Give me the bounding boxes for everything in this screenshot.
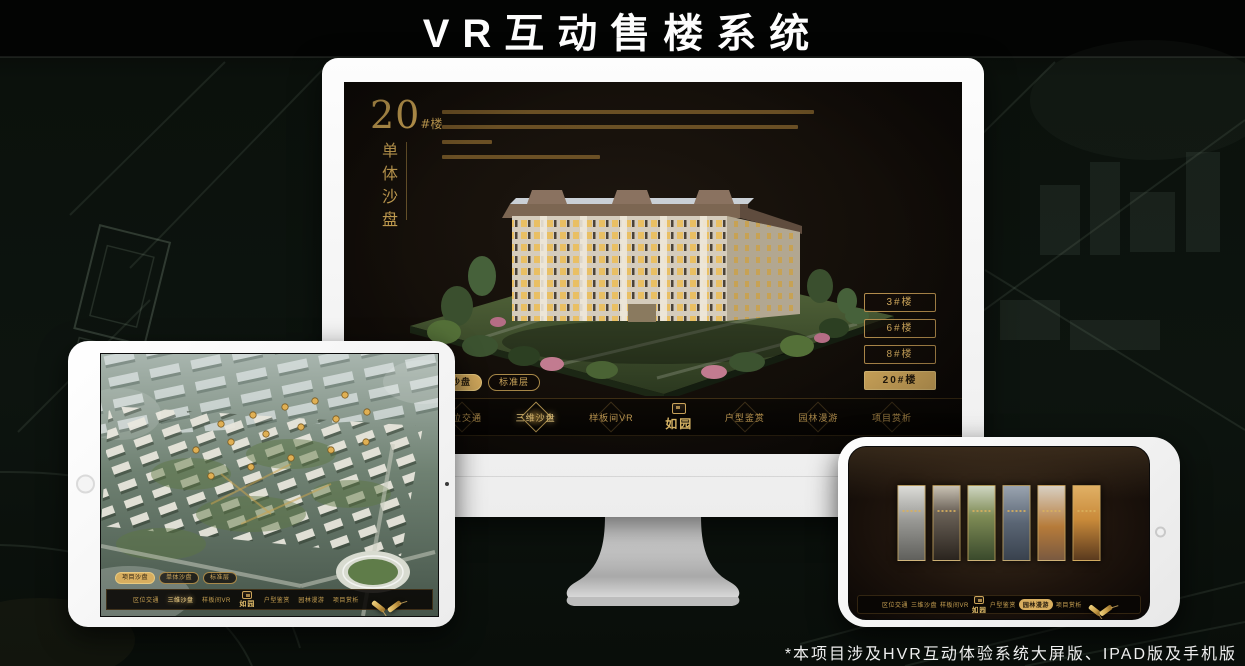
nav-item-showroom-vr[interactable]: 样板间VR — [587, 407, 636, 428]
nav-item-project-gallery[interactable]: 项目赏析 — [870, 407, 914, 428]
building-block — [502, 190, 802, 322]
floor-button-8[interactable]: 8#楼 — [864, 345, 936, 364]
poster-stage: VR互动售楼系统 20#楼 单体沙盘 — [0, 0, 1245, 666]
stadium — [336, 551, 410, 593]
phone-nav-3d-sandbox[interactable]: 三维沙盘 — [911, 600, 937, 609]
scroll-menu-icon-right[interactable] — [1099, 604, 1113, 616]
phone-screen: 区位交通 三维沙盘 样板间VR 如园 户型鉴赏 园林漫游 项目赏析 — [848, 446, 1150, 620]
panorama-card-garden[interactable] — [968, 485, 996, 561]
tablet-screen: 项目沙盘 单体沙盘 标准层 区位交通 三维沙盘 样板间VR 如园 户型鉴赏 园林… — [100, 353, 439, 617]
phone-nav-location[interactable]: 区位交通 — [882, 600, 908, 609]
seal-icon — [242, 591, 252, 599]
tablet-nav-showroom-vr[interactable]: 样板间VR — [202, 595, 231, 604]
footnote-text: *本项目涉及HVR互动体验系统大屏版、IPAD版及手机版 — [785, 640, 1237, 664]
subtab-standard-floor[interactable]: 标准层 — [488, 374, 540, 391]
tablet-device: 项目沙盘 单体沙盘 标准层 区位交通 三维沙盘 样板间VR 如园 户型鉴赏 园林… — [68, 341, 455, 627]
phone-nav-showroom-vr[interactable]: 样板间VR — [940, 600, 969, 609]
phone-nav-project-gallery[interactable]: 项目赏析 — [1056, 600, 1082, 609]
phone-brand-logo-text: 如园 — [972, 604, 987, 614]
phone-nav-floorplans[interactable]: 户型鉴赏 — [990, 600, 1016, 609]
panorama-gallery — [898, 485, 1101, 561]
tablet-brand-logo[interactable]: 如园 — [239, 591, 255, 609]
monitor-stand — [543, 515, 763, 611]
brand-logo-text: 如园 — [665, 415, 693, 432]
tablet-subtab-project-sandbox[interactable]: 项目沙盘 — [115, 572, 155, 584]
phone-nav-garden-roam[interactable]: 园林漫游 — [1019, 599, 1053, 610]
panorama-card-cabinet[interactable] — [1073, 485, 1101, 561]
panorama-card-autumn-court[interactable] — [1038, 485, 1066, 561]
tablet-navbar: 区位交通 三维沙盘 样板间VR 如园 户型鉴赏 园林漫游 项目赏析 — [106, 589, 433, 610]
phone-navbar: 区位交通 三维沙盘 样板间VR 如园 户型鉴赏 园林漫游 项目赏析 — [857, 595, 1141, 614]
tablet-nav-garden-roam[interactable]: 园林漫游 — [298, 595, 324, 604]
tablet-subtab-single-sandbox[interactable]: 单体沙盘 — [159, 572, 199, 584]
seal-icon — [672, 403, 686, 414]
nav-item-floorplans[interactable]: 户型鉴赏 — [723, 407, 767, 428]
panorama-card-building[interactable] — [1003, 485, 1031, 561]
phone-camera-icon — [1155, 527, 1166, 538]
tablet-nav-3d-sandbox[interactable]: 三维沙盘 — [168, 595, 194, 604]
phone-brand-logo[interactable]: 如园 — [972, 596, 987, 614]
tablet-nav-floorplans[interactable]: 户型鉴赏 — [264, 595, 290, 604]
seal-icon — [974, 596, 984, 604]
nav-item-3d-sandbox[interactable]: 三维沙盘 — [514, 407, 558, 428]
building-number: 20 — [370, 93, 420, 137]
home-button[interactable] — [76, 475, 95, 494]
tablet-nav-location[interactable]: 区位交通 — [133, 595, 159, 604]
tablet-brand-logo-text: 如园 — [239, 599, 255, 609]
building-subtitle: 单体沙盘 — [376, 142, 400, 234]
panorama-card-interior[interactable] — [933, 485, 961, 561]
floor-selector: 3#楼 6#楼 8#楼 20#楼 — [864, 293, 936, 397]
building-3d-render[interactable] — [402, 146, 902, 396]
tablet-subtabs: 项目沙盘 单体沙盘 标准层 — [115, 572, 237, 584]
page-title: VR互动售楼系统 — [0, 1, 1245, 59]
floor-button-6[interactable]: 6#楼 — [864, 319, 936, 338]
building-unit: #楼 — [420, 117, 442, 131]
panorama-card-courtyard-ink[interactable] — [898, 485, 926, 561]
brand-logo[interactable]: 如园 — [665, 403, 693, 432]
tablet-subtab-standard-floor[interactable]: 标准层 — [203, 572, 237, 584]
nav-item-garden-roam[interactable]: 园林漫游 — [796, 407, 840, 428]
tablet-nav-project-gallery[interactable]: 项目赏析 — [333, 595, 359, 604]
phone-device: 区位交通 三维沙盘 样板间VR 如园 户型鉴赏 园林漫游 项目赏析 — [838, 437, 1180, 627]
floor-button-20[interactable]: 20#楼 — [864, 371, 936, 390]
floor-button-3[interactable]: 3#楼 — [864, 293, 936, 312]
tablet-camera-icon — [445, 482, 449, 486]
